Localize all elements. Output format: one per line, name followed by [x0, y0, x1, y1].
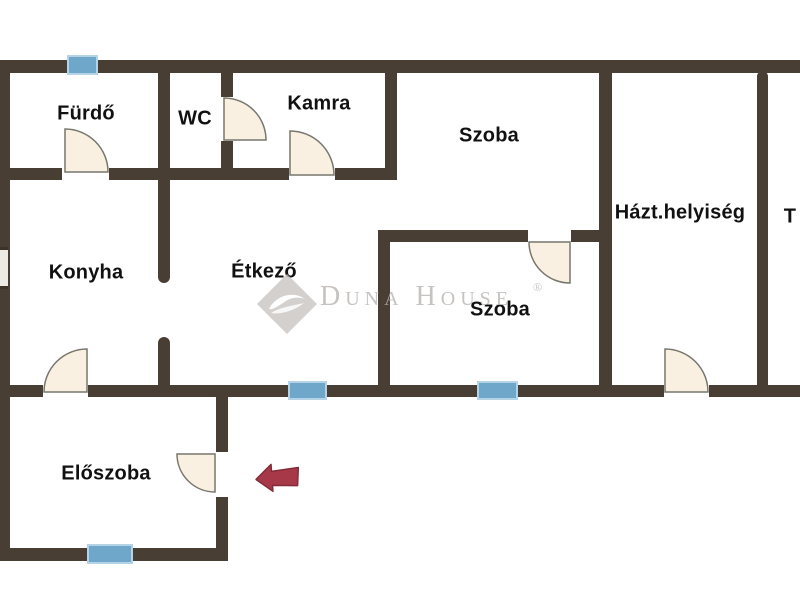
floor-plan: Fürdő WC Kamra Szoba Konyha Étkező Házt.… [0, 0, 800, 600]
duna-house-logo-icon [256, 273, 318, 335]
watermark-brand-text: Duna House [320, 281, 513, 313]
registered-mark-icon: ® [533, 280, 542, 295]
watermark: Duna House ® [0, 0, 800, 600]
